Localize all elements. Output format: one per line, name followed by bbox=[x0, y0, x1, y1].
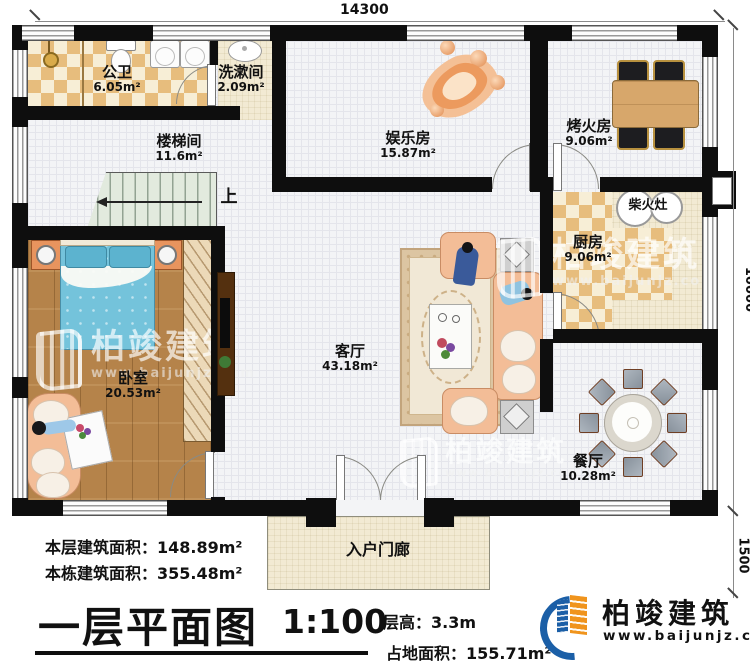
room-area: 20.53m² bbox=[105, 387, 161, 401]
room-area: 10.28m² bbox=[560, 470, 616, 484]
window bbox=[702, 57, 718, 147]
wall bbox=[286, 177, 492, 192]
floor-area-value: 148.89m² bbox=[157, 538, 242, 557]
flower-vase-icon bbox=[441, 350, 450, 359]
logo-website: www.baijunjz.com bbox=[603, 628, 750, 644]
porch-column bbox=[424, 498, 454, 527]
fire-room-table bbox=[612, 80, 699, 128]
pillow bbox=[109, 246, 151, 268]
door-leaf bbox=[553, 143, 562, 191]
room-area: 11.6m² bbox=[155, 150, 202, 164]
washing-machine bbox=[185, 47, 205, 66]
room-label-entertainment: 娱乐房 15.87m² bbox=[380, 130, 436, 161]
wall bbox=[600, 177, 718, 192]
window bbox=[22, 25, 74, 41]
dining-chair bbox=[579, 413, 599, 433]
room-label-washroom: 洗漱间 2.09m² bbox=[217, 64, 264, 95]
dining-chair bbox=[623, 457, 643, 477]
room-name: 烤火房 bbox=[565, 118, 612, 135]
dimension-top: 14300 bbox=[340, 2, 389, 18]
decor-circle bbox=[490, 75, 505, 90]
tv-screen bbox=[220, 298, 230, 348]
porch-column bbox=[306, 498, 336, 527]
chaise-cushion bbox=[36, 472, 70, 498]
dimension-right-lower: 1500 bbox=[736, 537, 750, 573]
wall bbox=[12, 226, 225, 240]
title-underline bbox=[35, 651, 368, 655]
room-label-stairhall: 楼梯间 11.6m² bbox=[155, 133, 202, 164]
door-leaf bbox=[205, 451, 214, 499]
wall bbox=[530, 41, 548, 192]
plan-scale: 1:100 bbox=[282, 602, 387, 641]
room-name: 客厅 bbox=[322, 343, 378, 360]
wardrobe bbox=[183, 238, 212, 442]
room-label-fireroom: 烤火房 9.06m² bbox=[565, 118, 612, 149]
logo-building-icon bbox=[557, 599, 568, 633]
flower-decor-icon bbox=[76, 424, 84, 432]
door-leaf bbox=[207, 64, 216, 106]
window bbox=[572, 25, 677, 41]
room-name: 洗漱间 bbox=[217, 64, 264, 81]
window bbox=[407, 25, 524, 41]
floor-plan-page: 柏竣建筑 www.baijunjz.com 柏竣建筑 www.baijunjz.… bbox=[0, 0, 750, 669]
floor-height-line: 层高：3.3m bbox=[383, 609, 476, 633]
window bbox=[12, 398, 28, 498]
wall bbox=[553, 329, 718, 343]
wall bbox=[540, 192, 553, 293]
coffee-table bbox=[429, 304, 472, 369]
teacup-icon bbox=[438, 313, 447, 322]
floor-area-label: 本层建筑面积： bbox=[45, 538, 157, 557]
chimney-flue bbox=[712, 177, 732, 205]
sofa-cushion bbox=[500, 330, 536, 362]
sofa-cushion bbox=[450, 396, 488, 426]
window bbox=[153, 25, 270, 41]
dimension-tick bbox=[30, 9, 41, 20]
room-name: 餐厅 bbox=[560, 453, 616, 470]
plant-icon bbox=[219, 356, 231, 368]
sink bbox=[228, 40, 262, 62]
dimension-right: 10000 bbox=[742, 267, 750, 312]
door-leaf bbox=[417, 455, 426, 503]
room-name: 卧室 bbox=[105, 370, 161, 387]
window bbox=[12, 50, 28, 97]
room-area: 43.18m² bbox=[322, 360, 378, 374]
land-area-value: 155.71m² bbox=[466, 644, 551, 663]
window bbox=[63, 500, 167, 516]
room-label-kitchen: 厨房 9.06m² bbox=[564, 234, 611, 265]
wall bbox=[12, 106, 240, 120]
building-area-value: 355.48m² bbox=[157, 564, 242, 583]
company-logo: 柏竣建筑 www.baijunjz.com bbox=[540, 588, 745, 662]
dimension-line-top bbox=[35, 21, 725, 22]
nightstand-lamp-icon bbox=[157, 245, 177, 265]
bathroom-divider bbox=[82, 41, 84, 106]
logo-building-icon bbox=[570, 595, 587, 635]
window bbox=[12, 127, 28, 203]
nightstand-lamp-icon bbox=[36, 245, 56, 265]
dimension-line-right bbox=[733, 28, 734, 516]
entrance-opening bbox=[336, 500, 424, 516]
room-area: 15.87m² bbox=[380, 147, 436, 161]
wall bbox=[272, 41, 286, 192]
building-area-label: 本栋建筑面积： bbox=[45, 564, 157, 583]
decor-circle bbox=[440, 40, 455, 55]
stairs-direction-arrow bbox=[106, 201, 202, 203]
room-name: 厨房 bbox=[564, 234, 611, 251]
dining-table-center bbox=[627, 417, 639, 429]
window bbox=[702, 390, 718, 490]
dimension-tick bbox=[714, 9, 725, 20]
window bbox=[580, 500, 670, 516]
room-area: 9.06m² bbox=[564, 251, 611, 265]
pillow bbox=[65, 246, 107, 268]
shower-head-icon bbox=[43, 52, 59, 68]
land-area-line: 占地面积：155.71m² bbox=[386, 640, 551, 664]
wall bbox=[533, 177, 553, 192]
stove-label-text: 柴火灶 bbox=[628, 199, 667, 214]
sofa-cushion bbox=[502, 364, 536, 394]
window bbox=[12, 268, 28, 377]
room-label-dining: 餐厅 10.28m² bbox=[560, 453, 616, 484]
sink-faucet-icon bbox=[242, 46, 247, 51]
room-label-bathroom: 公卫 6.05m² bbox=[93, 64, 140, 95]
room-name: 公卫 bbox=[93, 64, 140, 81]
stove-label: 柴火灶 bbox=[628, 199, 667, 214]
teacup-icon bbox=[452, 315, 460, 323]
stairs-up-label: 上 bbox=[221, 188, 238, 208]
dining-chair bbox=[623, 369, 643, 389]
land-area-label: 占地面积： bbox=[386, 644, 466, 663]
dining-chair bbox=[667, 413, 687, 433]
person-head bbox=[32, 421, 46, 435]
room-name: 娱乐房 bbox=[380, 130, 436, 147]
door-leaf bbox=[336, 455, 345, 503]
wall bbox=[540, 339, 553, 412]
room-area: 2.09m² bbox=[217, 81, 264, 95]
room-area: 9.06m² bbox=[565, 135, 612, 149]
stairs-up-text: 上 bbox=[221, 188, 238, 208]
room-label-porch: 入户门廊 bbox=[346, 541, 410, 559]
logo-company-name: 柏竣建筑 bbox=[602, 592, 734, 632]
floor-area-line: 本层建筑面积：148.89m² bbox=[45, 534, 242, 558]
person-head bbox=[521, 288, 533, 300]
room-name: 楼梯间 bbox=[155, 133, 202, 150]
room-name: 入户门廊 bbox=[346, 541, 410, 559]
floor-height-label: 层高： bbox=[383, 613, 431, 632]
window bbox=[702, 217, 718, 329]
building-area-line: 本栋建筑面积：355.48m² bbox=[45, 560, 242, 584]
flower-decor-icon bbox=[79, 432, 86, 439]
room-area: 6.05m² bbox=[93, 81, 140, 95]
plan-title: 一层平面图 bbox=[38, 594, 258, 655]
room-label-bedroom: 卧室 20.53m² bbox=[105, 370, 161, 401]
stairs-arrow-head-icon bbox=[96, 197, 107, 207]
washing-machine bbox=[155, 47, 175, 66]
person-head bbox=[462, 242, 473, 253]
dimension-line-right-lower bbox=[733, 516, 734, 598]
floor-height-value: 3.3m bbox=[431, 613, 476, 632]
kitchen-tiles-center bbox=[612, 228, 672, 300]
room-label-living: 客厅 43.18m² bbox=[322, 343, 378, 374]
